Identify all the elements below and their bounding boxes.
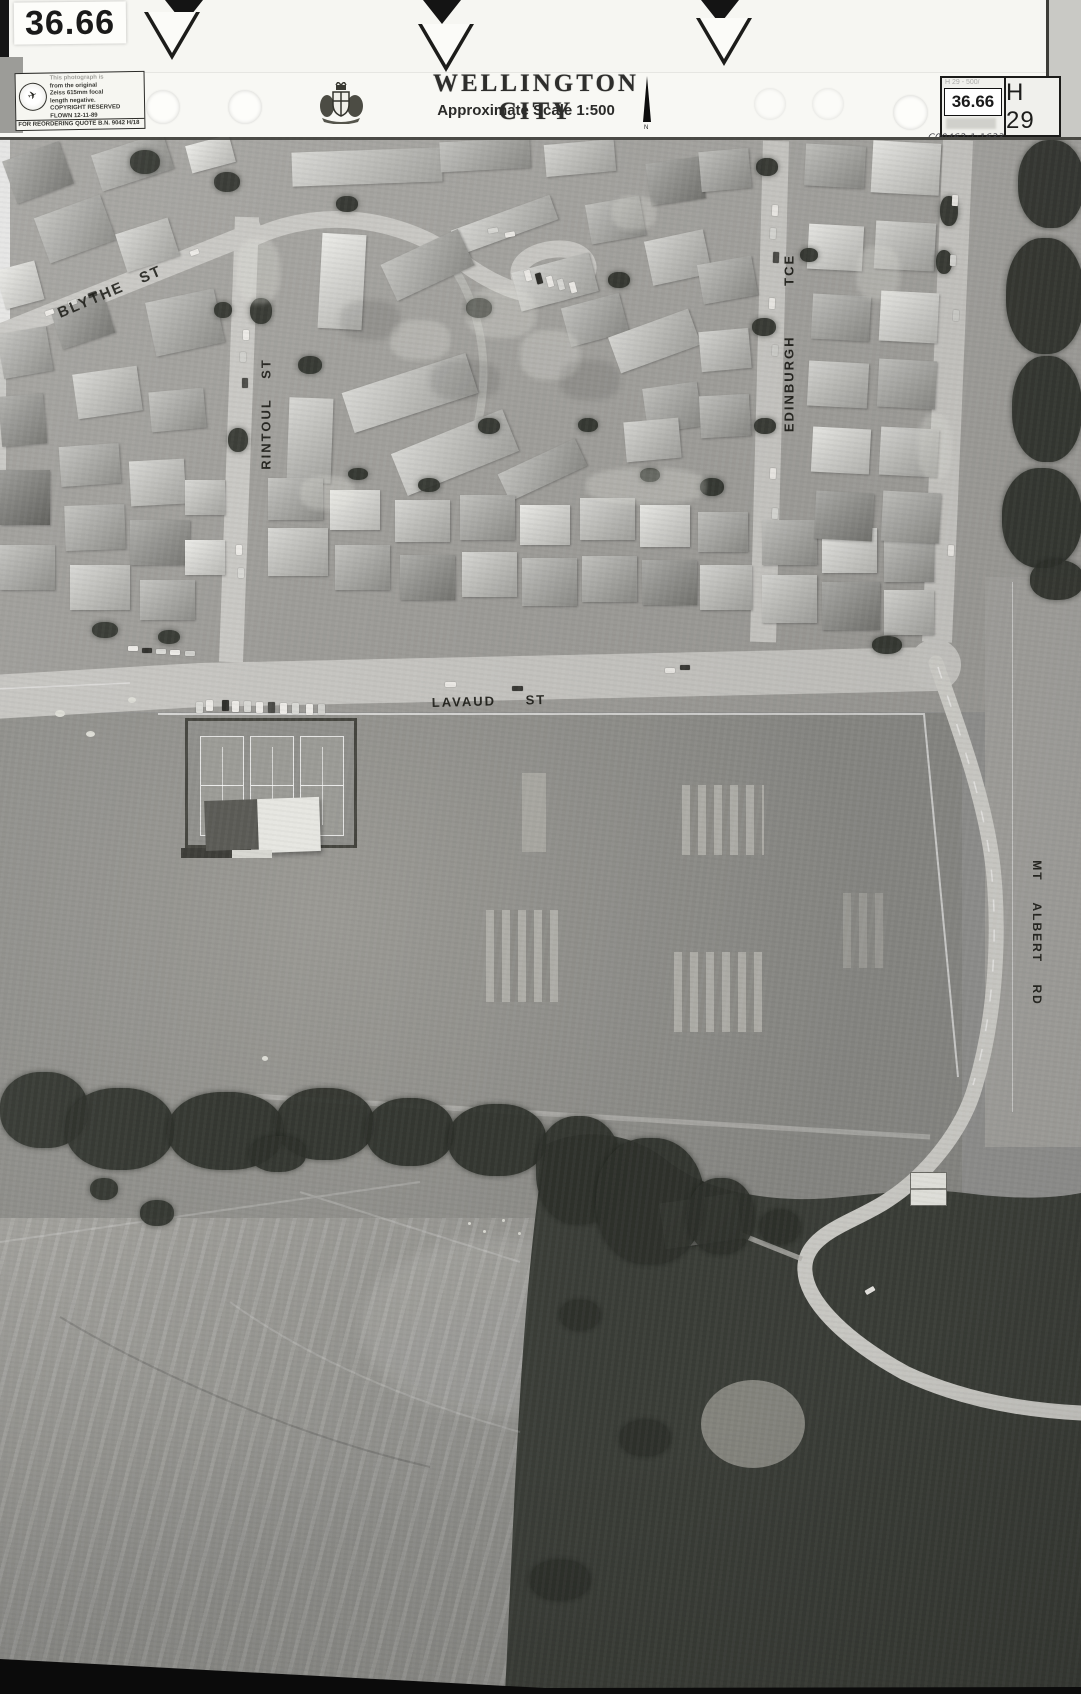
aerial-photo-sheet: 36.66 ✈ This photograph is [0,0,1081,1694]
north-label: N [644,125,648,131]
left-black-bar [0,0,9,57]
reference-faint-label: H 29 - 500/ [945,79,980,86]
registration-arrow-icon [143,0,203,80]
aerial-photograph: BLYTHE ST RINTOUL ST EDINBURGH TCE LAVAU… [0,137,1081,1694]
reference-number: 36.66 [944,88,1002,116]
north-arrow-icon: N [642,76,652,132]
registration-arrow-icon [696,0,756,80]
reference-box: H 29 - 500/ 36.66 H 29 [940,76,1061,137]
photo-corner-wedge [0,137,1081,1694]
punch-hole [893,95,928,130]
city-crest-icon [318,82,364,129]
punch-hole [754,88,786,120]
scale-note: Approximate Scale 1:500 [396,102,656,119]
nz-aerial-mapping-logo-icon: ✈ [16,74,51,121]
punch-hole [146,90,180,124]
photographer-stamp: ✈ This photograph is from the original Z… [15,71,146,131]
punch-hole [812,88,844,120]
sheet-reference: H 29 [1006,78,1059,135]
reference-smudge [946,118,996,129]
header: 36.66 ✈ This photograph is [0,0,1081,137]
registration-arrow-icon [418,0,478,80]
punch-hole [228,90,262,124]
photo-number-label: 36.66 [14,1,126,44]
